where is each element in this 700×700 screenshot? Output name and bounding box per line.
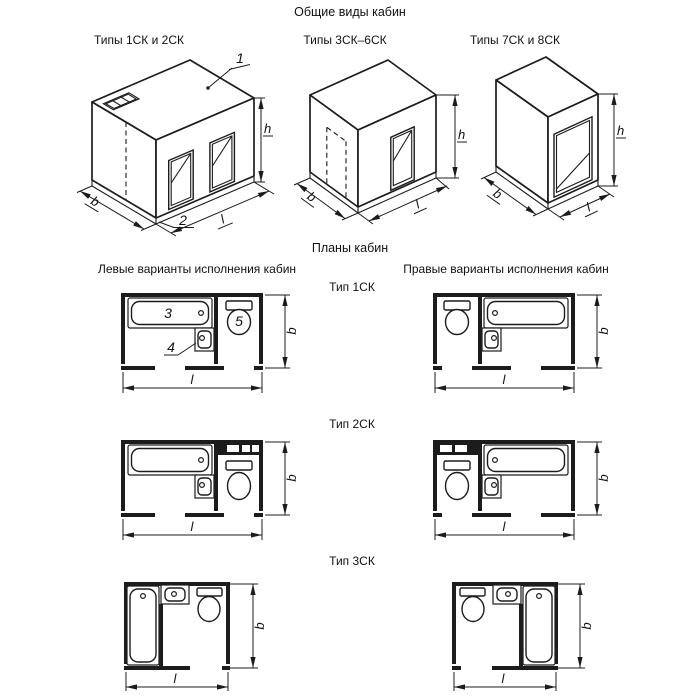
view-label-types-3-6: Типы 3СК–6СК	[265, 33, 425, 47]
iso-view-types-1-2: 1 2 h b l	[62, 55, 277, 255]
callout-5-toilet: 5	[235, 313, 243, 329]
bathtub	[127, 586, 159, 665]
toilet-bowl	[446, 310, 469, 335]
type-2sk-label: Тип 2СК	[292, 417, 412, 431]
bath-drain	[493, 311, 498, 316]
sink	[195, 475, 214, 498]
dim-b-text: b	[596, 474, 611, 481]
dim-b: b	[265, 442, 299, 515]
dim-h-text: h	[264, 121, 271, 136]
dim-l-text: l	[218, 211, 228, 226]
vent-block	[435, 442, 480, 455]
plan-2sk-left: b l	[112, 435, 300, 547]
view-label-types-7-8: Типы 7СК и 8СК	[435, 33, 595, 47]
toilet-tank	[197, 588, 222, 596]
dim-l-text: l	[174, 671, 178, 686]
bath-drain	[199, 311, 204, 316]
dim-b: b	[558, 584, 594, 668]
dim-b-text: b	[284, 327, 299, 334]
toilet-bowl	[228, 473, 251, 500]
bath-drain	[141, 594, 146, 599]
dim-b: b	[577, 295, 611, 368]
dim-l-text: l	[503, 372, 507, 387]
view-label-types-1-2: Типы 1СК и 2СК	[59, 33, 219, 47]
toilet	[460, 588, 485, 622]
dim-h: h	[598, 94, 626, 186]
toilet	[197, 588, 222, 622]
dim-l-text: l	[413, 196, 423, 211]
bathtub	[484, 445, 568, 475]
svg-text:4: 4	[167, 339, 175, 355]
callout-1-text: 1	[236, 50, 244, 66]
dim-l: l	[435, 372, 574, 393]
sink	[195, 328, 214, 351]
dim-b: b	[265, 295, 299, 368]
dim-b: b	[577, 442, 611, 515]
sink	[482, 475, 501, 498]
cabin-box	[496, 57, 598, 209]
bathtub	[484, 298, 568, 328]
dim-b: b	[230, 584, 267, 668]
dim-l: l	[126, 671, 228, 691]
callout-4-sink: 4	[164, 339, 196, 355]
toilet	[444, 301, 470, 335]
dim-l-text: l	[191, 519, 195, 534]
toilet	[444, 461, 470, 500]
dim-l-text: l	[191, 372, 195, 387]
plan-1sk-left: 3 4 5 b l	[112, 288, 300, 400]
bathtub	[128, 445, 212, 475]
dim-l: l	[123, 372, 262, 393]
bath-drain	[199, 458, 204, 463]
iso-view-types-3-6: h b l	[283, 55, 478, 255]
sink	[482, 328, 501, 351]
dim-l-text: l	[584, 199, 594, 214]
dim-b-text: b	[579, 622, 594, 629]
toilet-tank	[444, 461, 470, 470]
vent-block	[216, 442, 261, 455]
toilet-tank	[460, 588, 485, 596]
dim-b-text: b	[252, 622, 267, 629]
dim-l: l	[454, 671, 556, 691]
type-1sk-label: Тип 1СК	[292, 280, 412, 294]
type-3sk-label: Тип 3СК	[292, 554, 412, 568]
dim-b-text: b	[284, 474, 299, 481]
toilet-tank	[226, 301, 252, 310]
cabin-box	[310, 60, 436, 213]
right-variants-title: Правые варианты исполнения кабин	[396, 262, 616, 276]
callout-3-bath: 3	[164, 305, 172, 321]
toilet-bowl	[462, 597, 484, 622]
bath-drain	[493, 458, 498, 463]
toilet	[226, 461, 252, 500]
left-variants-title: Левые варианты исполнения кабин	[87, 262, 307, 276]
dim-l: l	[123, 519, 262, 540]
dim-h: h	[254, 98, 273, 182]
sink	[161, 585, 189, 604]
cabin-box	[92, 60, 254, 224]
sink	[493, 585, 521, 604]
toilet-bowl	[198, 597, 220, 622]
plan-3sk-right: b l	[440, 578, 600, 696]
toilet-bowl	[446, 473, 469, 500]
plan-3sk-left: b l	[112, 578, 272, 696]
toilet-tank	[226, 461, 252, 470]
dim-b-text: b	[596, 327, 611, 334]
page-title: Общие виды кабин	[250, 5, 450, 19]
callout-2-text: 2	[178, 212, 187, 228]
dim-l: l	[435, 519, 574, 540]
bathtub	[523, 586, 555, 665]
dim-h-text: h	[617, 123, 624, 138]
iso-view-types-7-8: h b l	[463, 55, 628, 255]
bath-drain	[537, 594, 542, 599]
plan-1sk-right: b l	[424, 288, 612, 400]
plan-2sk-right: b l	[424, 435, 612, 547]
toilet-tank	[444, 301, 470, 310]
drawing-sheet: Общие виды кабин Типы 1СК и 2СК Типы 3СК…	[0, 0, 700, 700]
dim-l-text: l	[503, 519, 507, 534]
dim-l-text: l	[502, 671, 506, 686]
